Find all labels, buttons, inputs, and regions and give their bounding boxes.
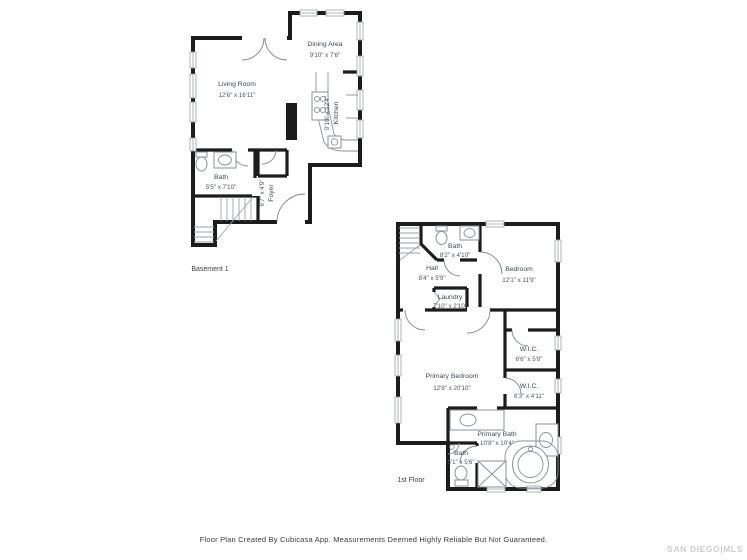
kitchen-label: Kitchen <box>333 101 340 124</box>
bath-2-label: Bath <box>454 450 468 457</box>
disclaimer-text: Floor Plan Created By Cubicasa App. Meas… <box>0 535 747 544</box>
dining-area-label: Dining Area <box>307 41 342 48</box>
floor-plan-canvas: Living Room 12'6" x 16'11" Dining Area 9… <box>0 0 747 560</box>
kitchen-chimney-block <box>286 103 297 140</box>
primary-bedroom-dims: 12'8" x 20'10" <box>433 385 470 392</box>
wic-2-label: W.I.C. <box>520 383 539 390</box>
sink-icon <box>460 226 479 240</box>
hall-label: Hall <box>426 265 438 272</box>
vanity-sink-icon <box>450 410 504 430</box>
mls-watermark: SAN DIEGO|MLS <box>667 544 743 554</box>
wic-1-label: W.I.C. <box>520 346 539 353</box>
basement-bath-fixtures <box>196 152 236 171</box>
sink-icon <box>214 152 236 168</box>
first-floor-label: 1st Floor <box>397 477 425 484</box>
bath-dims: 8'2" x 4'10" <box>440 252 471 259</box>
bedroom-label: Bedroom <box>505 266 533 273</box>
dining-area-dims: 9'10" x 7'6" <box>310 52 341 59</box>
bath-label: Bath <box>214 174 228 181</box>
foyer-label: Foyer <box>268 184 275 202</box>
primary-bath-dims: 10'8" x 10'4" <box>480 440 514 447</box>
laundry-label: Laundry <box>438 294 463 301</box>
toilet-icon <box>455 466 468 486</box>
hall-dims: 8'4" x 5'9" <box>418 275 445 282</box>
kitchen-dims: 9'10" x 12'4" <box>324 96 331 130</box>
primary-bath-label: Primary Bath <box>477 431 517 438</box>
first-floor-plan: Bath 8'2" x 4'10" Hall 8'4" x 5'9" Bedro… <box>395 221 561 492</box>
living-room-dims: 12'6" x 16'11" <box>219 92 256 99</box>
basement-floor-label: Basement 1 <box>191 266 228 273</box>
toilet-icon <box>196 152 207 171</box>
primary-bedroom-label: Primary Bedroom <box>426 373 479 380</box>
bath-2-dims: 5'1" x 5'6" <box>447 459 474 466</box>
floor-plan-page: Living Room 12'6" x 16'11" Dining Area 9… <box>0 0 747 560</box>
bath-dims: 5'5" x 7'10" <box>206 184 237 191</box>
shower-icon <box>478 461 506 487</box>
laundry-dims: 7'10" x 2'10" <box>433 303 467 310</box>
kitchen-sink-icon <box>328 136 341 148</box>
toilet-icon <box>436 226 447 245</box>
wic-2-dims: 6'3" x 4'11" <box>514 393 544 400</box>
living-room-label: Living Room <box>218 81 256 88</box>
wic-1-dims: 6'6" x 5'8" <box>515 356 542 363</box>
foyer-dims: 6'7" x 4'9" <box>259 179 266 206</box>
basement-plan: Living Room 12'6" x 16'11" Dining Area 9… <box>190 10 363 273</box>
bath-label: Bath <box>448 243 462 250</box>
bedroom-dims: 12'1" x 11'9" <box>502 277 535 284</box>
